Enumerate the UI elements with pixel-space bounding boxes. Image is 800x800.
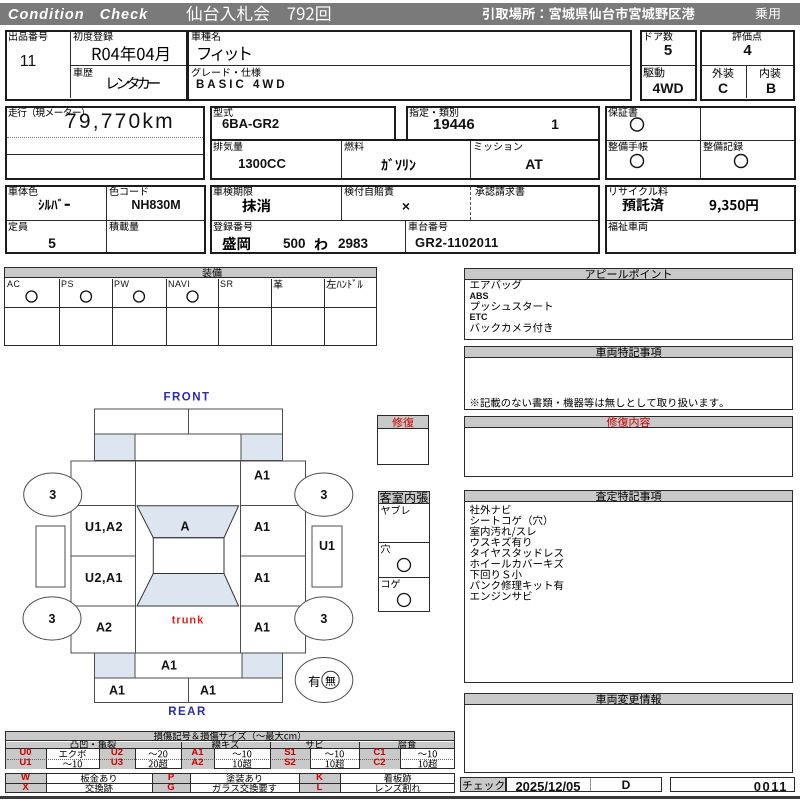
svg-text:A1: A1	[161, 659, 177, 673]
svg-text:U1: U1	[319, 539, 335, 553]
svg-text:3: 3	[49, 488, 56, 502]
svg-text:A1: A1	[109, 684, 125, 698]
svg-text:A1: A1	[254, 621, 270, 635]
svg-text:U2,A1: U2,A1	[85, 571, 123, 585]
svg-text:3: 3	[49, 612, 56, 626]
svg-text:A: A	[180, 520, 189, 534]
svg-text:REAR: REAR	[168, 706, 207, 718]
svg-text:A1: A1	[254, 469, 270, 483]
svg-text:A1: A1	[254, 571, 270, 585]
svg-text:3: 3	[320, 612, 327, 626]
svg-text:FRONT: FRONT	[163, 392, 210, 404]
svg-text:A1: A1	[200, 684, 216, 698]
svg-text:3: 3	[320, 488, 327, 502]
svg-text:U1,A2: U1,A2	[85, 520, 123, 534]
svg-text:trunk: trunk	[172, 615, 205, 627]
svg-text:A2: A2	[96, 621, 112, 635]
svg-text:A1: A1	[254, 520, 270, 534]
